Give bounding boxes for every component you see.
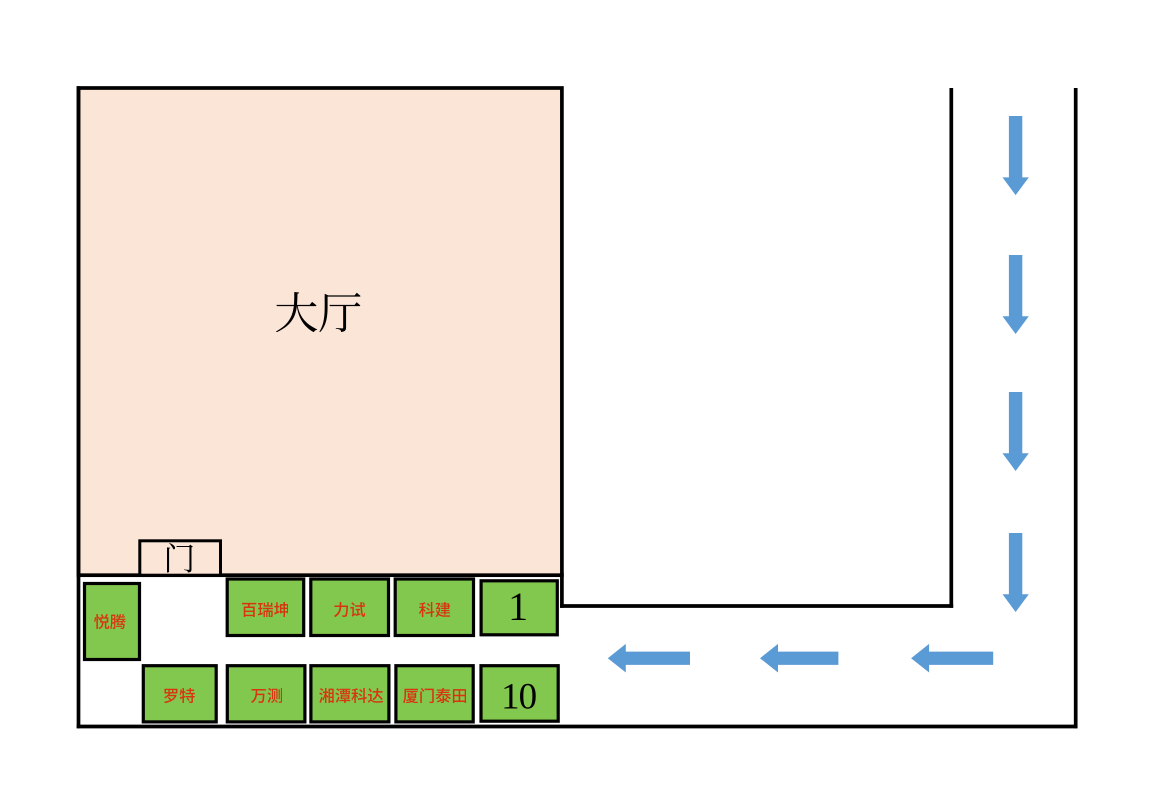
svg-text:10: 10 bbox=[501, 676, 537, 717]
svg-text:1: 1 bbox=[508, 584, 528, 629]
